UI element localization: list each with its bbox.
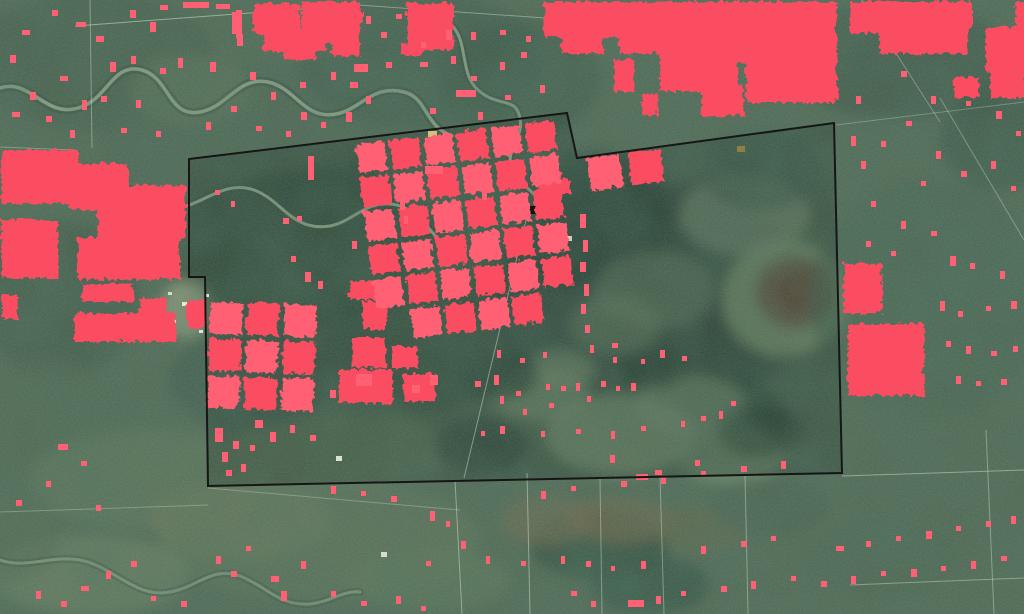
alert-mark: [1011, 301, 1017, 309]
alert-mark: [131, 561, 137, 567]
alert-mark: [446, 30, 452, 40]
alert-mark: [430, 375, 438, 385]
alert-mark: [81, 461, 87, 466]
alert-grid-cell: [455, 127, 487, 159]
alert-patch: [345, 8, 361, 20]
alert-mark: [549, 403, 554, 408]
alert-mark: [1011, 186, 1016, 191]
alert-mark: [300, 82, 306, 88]
alert-mark: [412, 385, 420, 393]
alert-mark: [231, 201, 235, 207]
alert-mark: [305, 272, 311, 282]
alert-mark: [361, 601, 367, 606]
alert-mark: [500, 30, 506, 35]
alert-mark: [451, 56, 456, 64]
alert-mark: [216, 556, 221, 564]
alert-mark: [751, 581, 756, 589]
alert-mark: [836, 546, 844, 551]
alert-mark: [610, 455, 615, 463]
alert-mark: [12, 112, 20, 117]
alert-mark: [291, 256, 296, 262]
alert-mark: [283, 218, 289, 224]
alert-patch: [918, 0, 970, 26]
alert-mark: [961, 171, 967, 177]
alert-mark: [121, 128, 127, 133]
alert-mark: [901, 71, 907, 77]
alert-mark: [958, 311, 963, 317]
alert-mark: [1011, 516, 1016, 524]
alert-mark: [950, 256, 956, 266]
alert-mark: [996, 111, 1002, 119]
alert-mark: [523, 409, 527, 415]
alert-mark: [231, 571, 237, 577]
alert-grid: [205, 300, 315, 410]
alert-mark: [160, 5, 168, 10]
alert-mark: [931, 96, 936, 104]
alert-grid-cell: [535, 220, 567, 252]
alert-mark: [1016, 131, 1021, 136]
alert-mark: [966, 346, 971, 354]
alert-mark: [250, 72, 256, 80]
alert-mark: [236, 10, 242, 38]
alert-mark: [956, 526, 961, 531]
alert-mark: [271, 92, 276, 100]
alert-patch: [612, 58, 632, 90]
alert-mark: [681, 421, 685, 427]
alert-mark: [404, 216, 408, 224]
alert-mark: [546, 384, 550, 390]
alert-grid-cell: [362, 207, 394, 239]
alert-mark: [505, 95, 511, 100]
alert-mark: [521, 561, 526, 566]
alert-mark: [970, 263, 975, 269]
alert-patch: [900, 348, 920, 378]
alert-mark: [586, 561, 591, 567]
alert-mark: [921, 181, 926, 186]
alert-mark: [741, 466, 747, 472]
alert-mark: [250, 445, 255, 451]
alert-mark: [420, 62, 428, 67]
alert-patch: [700, 84, 742, 114]
alert-mark: [585, 325, 590, 333]
alert-mark: [233, 441, 239, 449]
alert-grid-cell: [539, 254, 571, 286]
alert-mark: [1001, 379, 1007, 385]
alert-patch: [0, 293, 16, 317]
alert-mark: [366, 96, 371, 104]
alert-grid-cell: [510, 292, 542, 324]
alert-grid-cell: [242, 375, 275, 408]
alert-mark: [281, 591, 287, 601]
alert-patch: [282, 44, 314, 58]
alert-mark: [719, 411, 723, 419]
alert-grid-cell: [281, 340, 314, 373]
alert-grid-cell: [464, 195, 496, 227]
alert-grid-cell: [527, 152, 559, 184]
alert-mark: [580, 262, 586, 272]
alert-mark: [781, 461, 786, 469]
alert-mark: [682, 356, 687, 361]
alert-mark: [256, 126, 262, 131]
alert-mark: [231, 106, 237, 112]
alert-patch: [76, 236, 178, 278]
alert-mark: [430, 511, 435, 521]
alert-patch: [988, 58, 1024, 96]
alert-mark: [400, 200, 405, 210]
ground-speck: [737, 146, 745, 152]
alert-mark: [350, 82, 358, 88]
alert-grid-cell: [442, 300, 474, 332]
alert-mark: [986, 306, 991, 311]
alert-mark: [160, 68, 166, 74]
alert-mark: [891, 251, 896, 256]
alert-mark: [580, 214, 586, 228]
alert-patch: [30, 152, 70, 172]
alert-mark: [183, 2, 209, 8]
alert-mark: [500, 62, 505, 70]
alert-mark: [290, 425, 295, 433]
alert-mark: [475, 381, 481, 387]
alert-mark: [330, 390, 336, 398]
alert-mark: [156, 131, 161, 137]
alert-mark: [301, 112, 307, 120]
alert-mark: [30, 92, 36, 100]
alert-mark: [591, 601, 596, 607]
alert-mark: [421, 42, 426, 48]
alert-mark: [60, 76, 68, 81]
alert-mark: [881, 571, 886, 576]
ground-speck: [199, 330, 203, 333]
alert-mark: [222, 452, 228, 462]
alert-mark: [590, 345, 594, 353]
alert-mark: [46, 481, 51, 487]
ground-speck: [381, 552, 387, 557]
alert-grid-cell: [531, 186, 563, 218]
alert-mark: [926, 531, 932, 539]
alert-patch: [80, 282, 132, 300]
alert-patch: [405, 2, 452, 48]
alert-grid-cell: [279, 377, 312, 410]
alert-mark: [456, 90, 476, 97]
alert-patch: [640, 92, 656, 114]
alert-mark: [631, 383, 636, 391]
alert-mark: [425, 166, 443, 174]
alert-mark: [611, 566, 615, 571]
alert-mark: [381, 32, 387, 38]
alert-grid-cell: [472, 262, 504, 294]
alert-mark: [81, 586, 89, 591]
alert-mark: [701, 416, 706, 421]
alert-mark: [791, 576, 796, 581]
alert-mark: [310, 435, 316, 441]
alert-grid-cell: [388, 135, 420, 167]
alert-mark: [541, 431, 545, 437]
alert-mark: [911, 569, 917, 577]
alert-mark: [641, 426, 646, 431]
alert-patch: [798, 55, 836, 97]
alert-mark: [366, 16, 371, 24]
alert-grid-cell: [371, 274, 403, 306]
alert-grid-cell: [421, 131, 453, 163]
alert-mark: [500, 396, 504, 404]
alert-mark: [571, 591, 577, 596]
alert-mark: [721, 586, 727, 592]
alert-mark: [346, 112, 352, 122]
alert-mark: [331, 72, 336, 80]
alert-mark: [481, 431, 485, 436]
alert-mark: [58, 444, 68, 450]
alert-mark: [426, 561, 431, 566]
alert-mark: [660, 350, 665, 358]
alert-mark: [1000, 271, 1005, 279]
alert-mark: [110, 62, 116, 72]
alert-grid-cell: [404, 270, 436, 302]
ground-speck: [566, 236, 572, 241]
satellite-map-image[interactable]: [0, 0, 1024, 614]
alert-mark: [516, 391, 521, 396]
alert-grid-cell: [282, 303, 315, 336]
alert-mark: [520, 358, 525, 363]
alert-mark: [851, 136, 856, 146]
alert-mark: [613, 357, 617, 363]
alert-mark: [352, 241, 357, 249]
alert-mark: [106, 571, 111, 579]
alert-grid-cell: [208, 300, 241, 333]
alert-patch: [1014, 0, 1024, 40]
alert-mark: [136, 100, 141, 108]
alert-patch: [390, 345, 416, 367]
alert-mark: [178, 58, 183, 68]
alert-mark: [991, 351, 997, 356]
alert-mark: [246, 546, 251, 551]
alert-mark: [576, 429, 581, 434]
alert-grid-cell: [489, 123, 521, 155]
alert-mark: [656, 596, 661, 604]
alert-mark: [906, 121, 912, 126]
alert-patch: [400, 42, 422, 54]
alert-mark: [611, 431, 615, 439]
alert-mark: [976, 381, 981, 386]
alert-mark: [641, 561, 646, 569]
alert-mark: [150, 22, 156, 32]
alert-grid-cell: [626, 147, 663, 184]
alert-mark: [655, 470, 662, 475]
alert-mark: [215, 190, 220, 195]
ground-speck: [168, 292, 172, 295]
alert-mark: [896, 536, 901, 541]
alert-grid-cell: [408, 304, 440, 336]
alert-grid-cell: [506, 258, 538, 290]
alert-mark: [396, 14, 402, 19]
alert-patch: [186, 298, 204, 326]
alert-patch: [350, 336, 384, 366]
alert-mark: [52, 10, 58, 16]
alert-grid-cell: [400, 237, 432, 269]
alert-patch: [842, 262, 880, 312]
alert-mark: [583, 240, 588, 252]
alert-mark: [628, 600, 644, 607]
alert-mark: [601, 381, 606, 387]
alert-grid-cell: [476, 296, 508, 328]
alert-mark: [851, 576, 856, 584]
alert-mark: [96, 505, 101, 511]
alert-mark: [321, 122, 326, 128]
alert-mark: [215, 428, 223, 442]
alert-mark: [471, 76, 477, 81]
alert-mark: [701, 546, 706, 554]
alert-grid-cell: [245, 301, 278, 334]
alert-mark: [210, 62, 216, 72]
alert-mark: [521, 52, 527, 58]
alert-mark: [421, 606, 426, 611]
alert-mark: [206, 122, 211, 130]
alert-mark: [318, 281, 323, 289]
alert-mark: [541, 491, 546, 499]
alert-mark: [497, 350, 501, 358]
alert-mark: [286, 131, 291, 137]
alert-mark: [255, 420, 263, 428]
alert-patch: [300, 0, 358, 42]
alert-patch: [96, 184, 184, 236]
alert-grid-cell: [207, 337, 240, 370]
alert-mark: [986, 521, 991, 527]
alert-mark: [584, 284, 589, 296]
alert-mark: [386, 62, 392, 68]
alert-mark: [681, 591, 686, 596]
alert-mark: [461, 541, 466, 549]
alert-mark: [561, 386, 566, 391]
alert-grid-cell: [501, 224, 533, 256]
alert-mark: [991, 161, 996, 169]
alert-mark: [396, 596, 401, 604]
alert-mark: [270, 432, 276, 442]
alert-mark: [941, 566, 946, 571]
alert-mark: [931, 231, 937, 236]
alert-mark: [616, 386, 620, 391]
alert-mark: [70, 130, 75, 138]
alert-mark: [151, 596, 156, 601]
alert-mark: [821, 581, 827, 587]
alert-mark: [131, 56, 136, 64]
alert-mark: [482, 192, 487, 200]
alert-mark: [612, 343, 618, 348]
alert-grid-cell: [493, 157, 525, 189]
alert-mark: [478, 112, 483, 120]
alert-grid-cell: [438, 266, 470, 298]
alert-grid-cell: [468, 228, 500, 260]
alert-grid-cell: [366, 241, 398, 273]
alert-mark: [641, 359, 645, 364]
alert-mark: [587, 396, 591, 402]
alert-mark: [771, 536, 776, 541]
alert-mark: [361, 491, 366, 496]
alert-mark: [331, 486, 336, 494]
alert-mark: [308, 156, 314, 180]
alert-mark: [731, 401, 736, 406]
alert-mark: [96, 36, 104, 42]
alert-mark: [494, 375, 499, 385]
alert-grid-cell: [434, 232, 466, 264]
alert-mark: [446, 521, 450, 527]
alert-mark: [391, 496, 397, 502]
satellite-map-view[interactable]: [0, 0, 1024, 614]
alert-mark: [354, 64, 368, 72]
alert-mark: [130, 10, 136, 18]
alert-mark: [946, 341, 951, 347]
alert-mark: [331, 591, 336, 597]
ground-speck: [336, 456, 342, 461]
alert-mark: [741, 541, 747, 547]
alert-mark: [22, 30, 30, 35]
alert-mark: [486, 556, 490, 564]
alert-grid-cell: [430, 199, 462, 231]
alert-mark: [901, 221, 906, 229]
alert-mark: [571, 486, 576, 491]
alert-mark: [471, 32, 476, 40]
alert-mark: [621, 481, 627, 487]
alert-mark: [543, 352, 547, 358]
alert-mark: [966, 101, 971, 106]
alert-patch: [952, 76, 978, 96]
alert-mark: [1013, 346, 1018, 352]
alert-mark: [226, 470, 232, 476]
alert-mark: [181, 601, 187, 607]
alert-mark: [695, 460, 700, 466]
alert-grid-cell: [523, 119, 555, 151]
alert-mark: [956, 376, 961, 384]
alert-mark: [866, 241, 871, 247]
alert-mark: [16, 500, 22, 506]
alert-mark: [430, 108, 436, 114]
alert-mark: [526, 36, 531, 42]
alert-grid-cell: [459, 161, 491, 193]
alert-mark: [871, 201, 876, 207]
alert-grid-cell: [354, 139, 386, 171]
alert-mark: [561, 556, 565, 564]
alert-patch: [658, 48, 736, 90]
alert-mark: [271, 576, 279, 582]
alert-mark: [866, 541, 871, 547]
alert-mark: [216, 4, 230, 9]
alert-mark: [241, 464, 246, 472]
alert-grid-cell: [244, 338, 277, 371]
alert-grid-cell: [497, 190, 529, 222]
alert-mark: [36, 591, 41, 599]
alert-mark: [881, 141, 886, 147]
alert-mark: [581, 304, 586, 314]
alert-grid-cell: [392, 169, 424, 201]
alert-grid-cell: [585, 152, 622, 189]
alert-mark: [10, 55, 16, 63]
alert-mark: [101, 96, 107, 102]
alert-mark: [936, 151, 941, 159]
alert-mark: [540, 85, 545, 93]
alert-mark: [1001, 556, 1007, 561]
alert-mark: [500, 426, 505, 434]
alert-mark: [82, 100, 87, 110]
alert-patch: [330, 36, 358, 54]
alert-mark: [356, 374, 372, 386]
alert-mark: [576, 383, 580, 391]
alert-mark: [297, 216, 302, 221]
alert-patch: [0, 218, 56, 276]
alert-mark: [301, 561, 306, 569]
alert-mark: [856, 96, 861, 104]
alert-mark: [861, 161, 866, 169]
alert-mark: [940, 301, 945, 311]
alert-patch: [560, 34, 602, 52]
alert-mark: [76, 22, 86, 27]
